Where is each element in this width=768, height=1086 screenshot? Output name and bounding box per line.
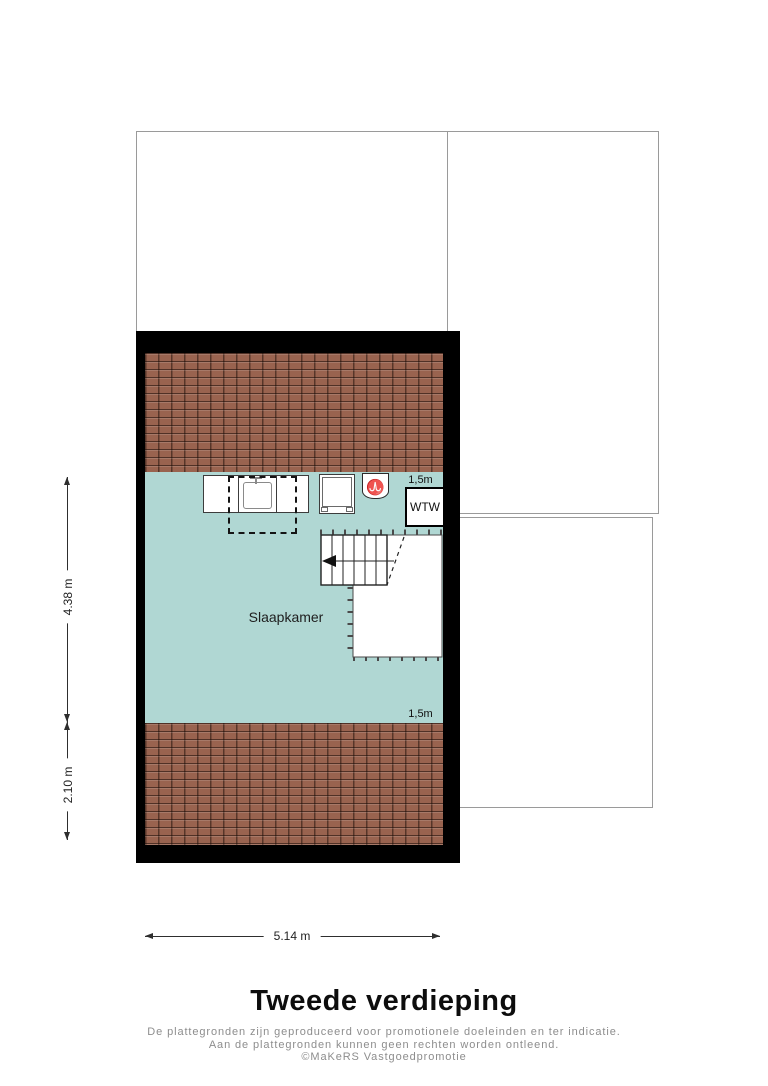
washing-machine-foot <box>321 507 328 512</box>
dimension-label-upper: 4.38 m <box>61 571 75 624</box>
washing-machine <box>319 474 355 514</box>
copyright-line: ©MaKeRS Vastgoedpromotie <box>0 1051 768 1063</box>
dimension-label-bottom: 5.14 m <box>264 929 321 943</box>
dimension-arrow <box>64 477 70 485</box>
ventilation-icon: ♈ <box>366 479 385 494</box>
floorplan-second-floor: ♈ 1,5m WTW Slaapkamer 1,5m <box>136 331 460 863</box>
stairwell <box>320 529 443 661</box>
height-line-label-bottom: 1,5m <box>398 708 443 720</box>
roof-tiles-bottom <box>145 723 443 845</box>
washing-machine-door <box>322 477 352 507</box>
mechanical-ventilation-point: ♈ <box>362 473 389 499</box>
wtw-unit: WTW <box>405 487 445 527</box>
dimension-arrow <box>145 933 153 939</box>
room-label-slaapkamer: Slaapkamer <box>196 609 376 625</box>
lower-floor-outline-lower <box>451 517 653 808</box>
disclaimer-line-2: Aan de plattegronden kunnen geen rechten… <box>0 1039 768 1051</box>
dimension-arrow <box>432 933 440 939</box>
low-headroom-dashed-zone <box>228 476 297 534</box>
disclaimer-line-1: De plattegronden zijn geproduceerd voor … <box>0 1026 768 1038</box>
washing-machine-foot <box>346 507 353 512</box>
dimension-arrow <box>64 714 70 722</box>
dimension-arrow <box>64 722 70 730</box>
page-title: Tweede verdieping <box>0 985 768 1018</box>
roof-tiles-top <box>145 353 443 472</box>
dimension-label-lower: 2.10 m <box>61 759 75 812</box>
dimension-arrow <box>64 832 70 840</box>
height-line-label-top: 1,5m <box>398 474 443 486</box>
